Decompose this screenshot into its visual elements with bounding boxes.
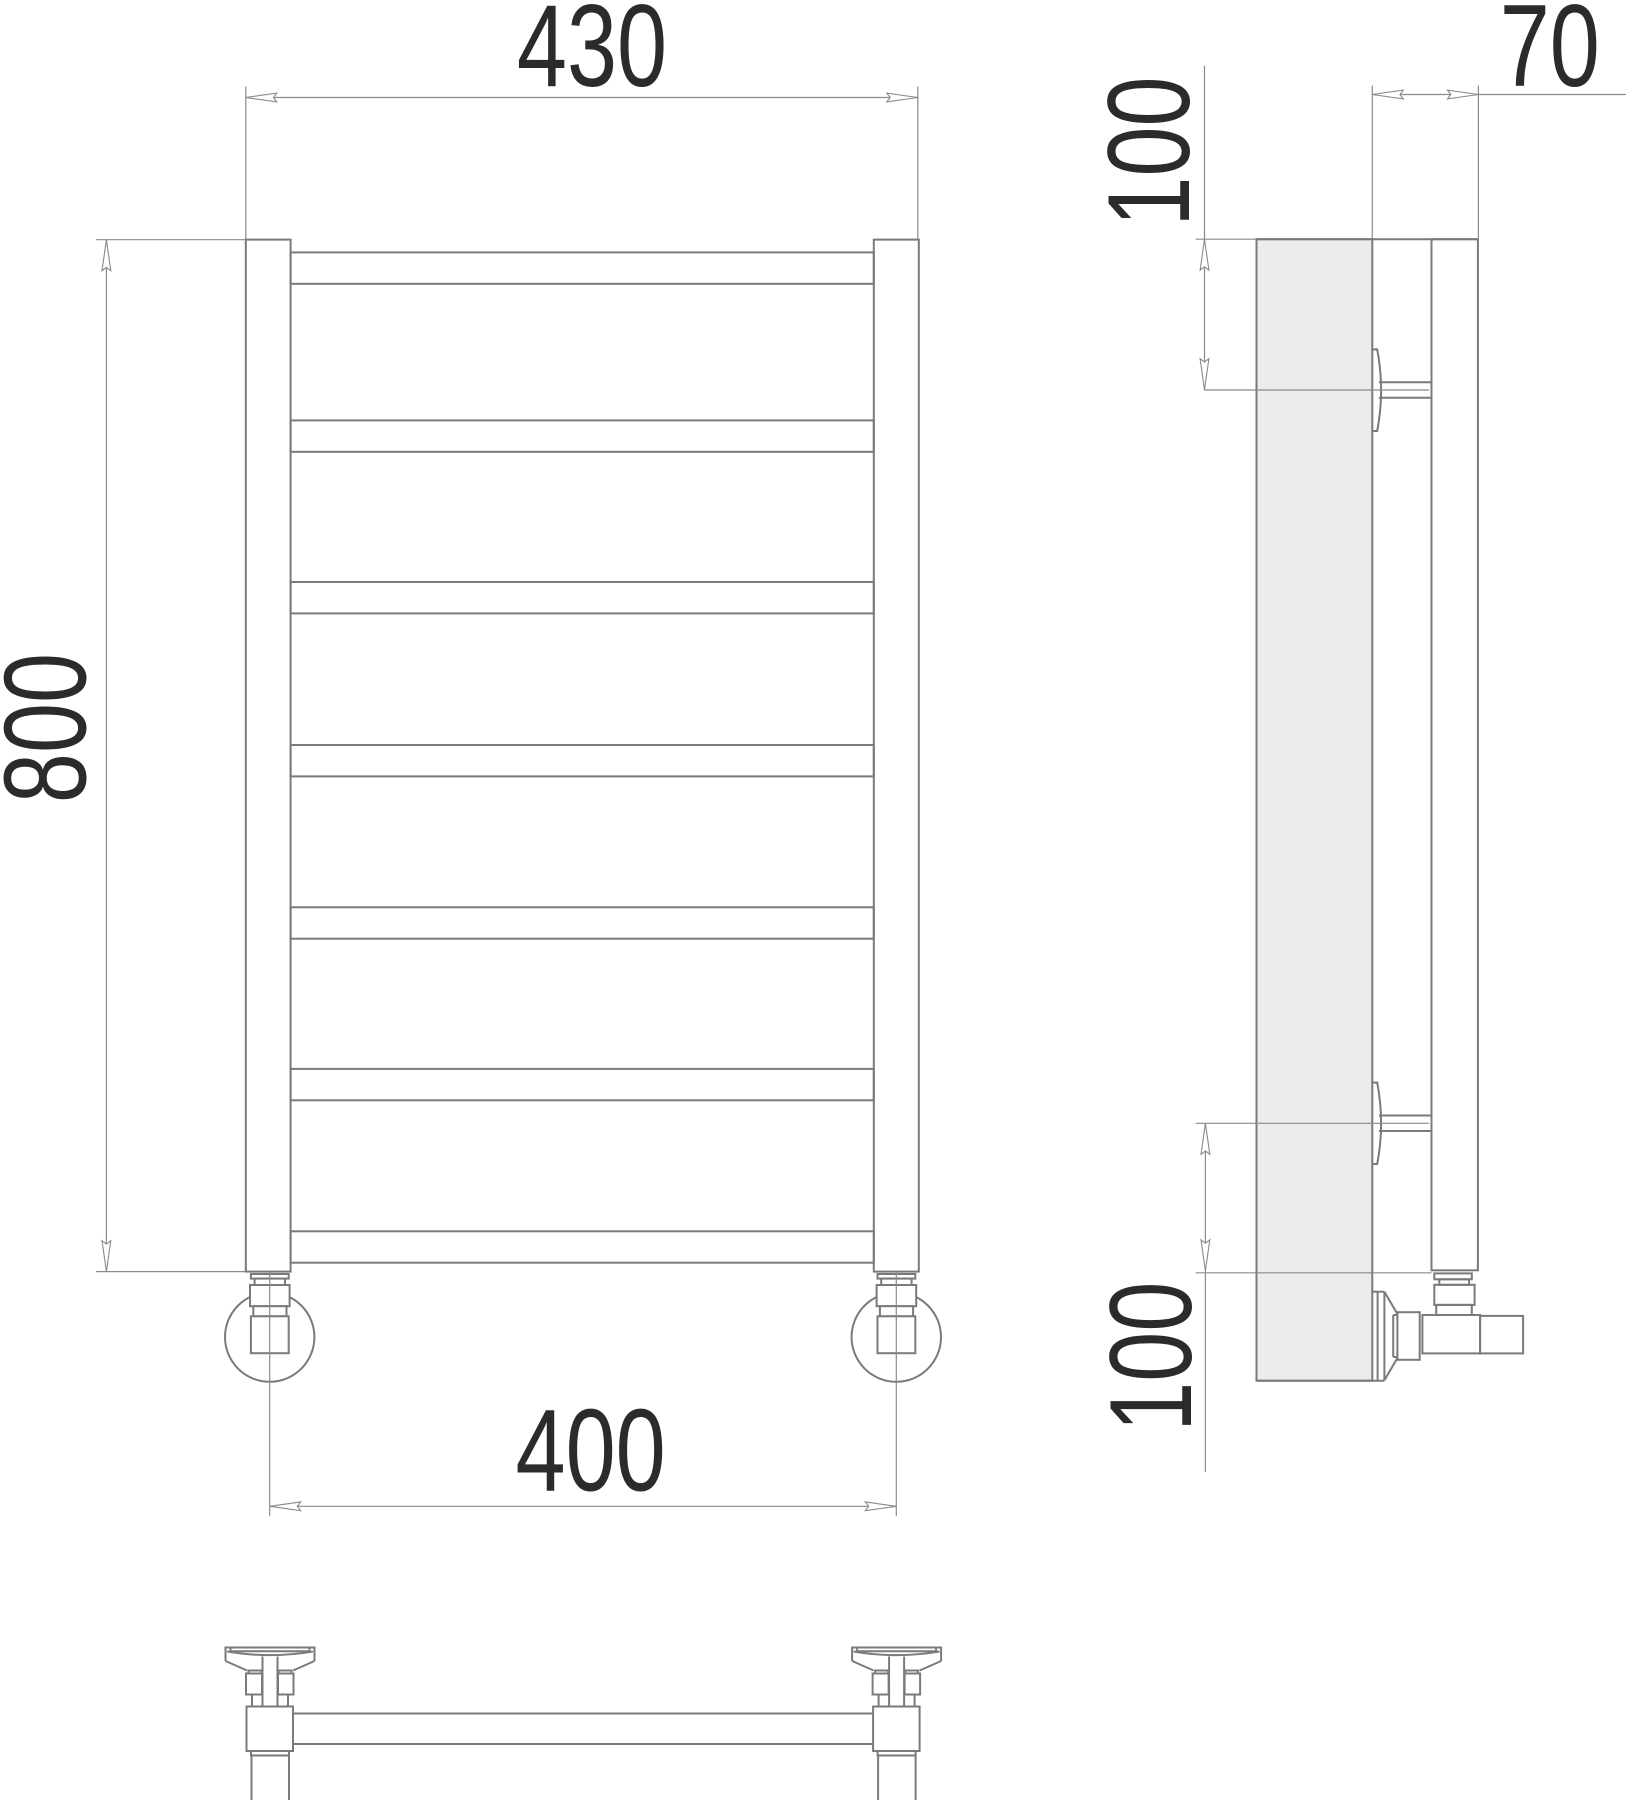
svg-text:70: 70: [1500, 0, 1600, 112]
svg-text:400: 400: [516, 1386, 666, 1516]
svg-text:800: 800: [0, 653, 111, 803]
svg-text:430: 430: [517, 0, 667, 112]
svg-text:100: 100: [1085, 76, 1215, 226]
svg-text:100: 100: [1087, 1282, 1217, 1432]
